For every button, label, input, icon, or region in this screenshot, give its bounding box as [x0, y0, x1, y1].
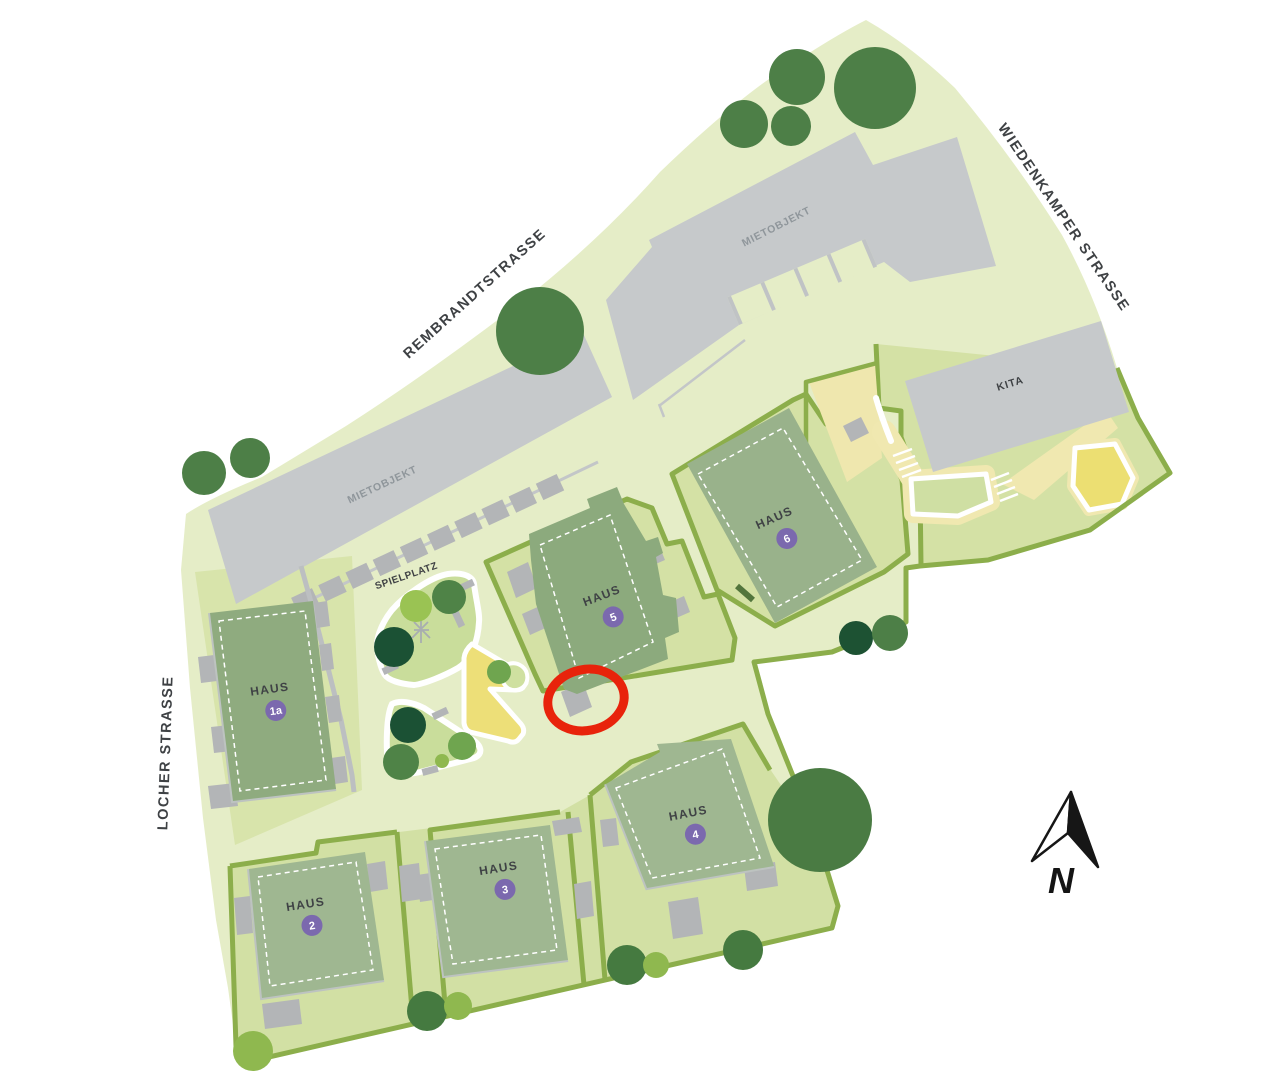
svg-text:LOCHER STRASSE: LOCHER STRASSE	[155, 675, 176, 830]
svg-text:N: N	[1048, 860, 1075, 901]
